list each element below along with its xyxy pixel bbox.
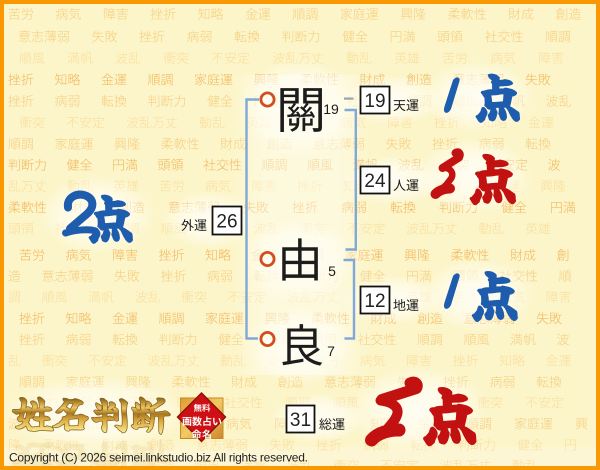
- svg-text:24: 24: [364, 171, 386, 192]
- svg-text:31: 31: [290, 410, 311, 431]
- svg-text:7: 7: [327, 343, 335, 359]
- svg-text:12: 12: [364, 291, 385, 312]
- svg-text:19: 19: [364, 91, 385, 112]
- svg-text:Copyright (C) 2026 seimei.link: Copyright (C) 2026 seimei.linkstudio.biz…: [9, 451, 308, 465]
- svg-text:5: 5: [328, 263, 336, 279]
- svg-text:19: 19: [323, 101, 339, 117]
- svg-text:26: 26: [216, 211, 237, 232]
